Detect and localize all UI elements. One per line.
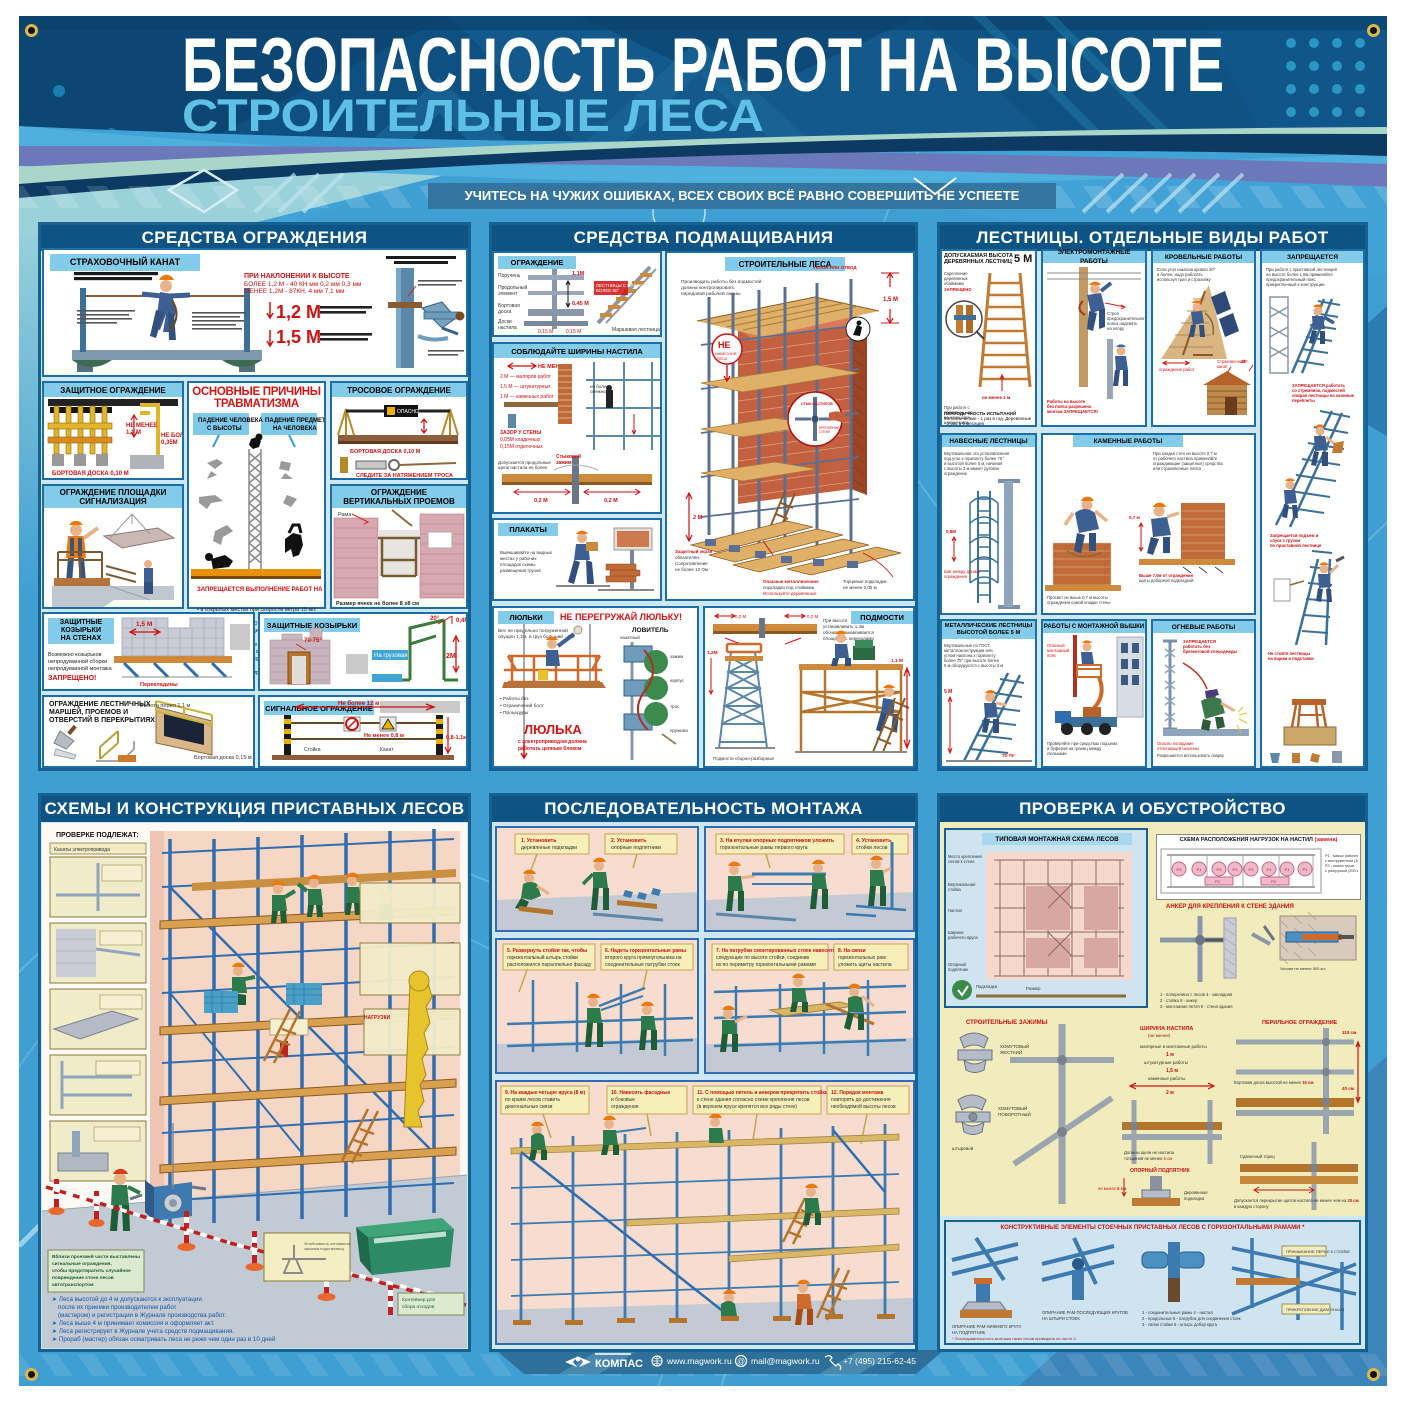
svg-text:Канат: Канат (380, 747, 394, 753)
svg-text:НАВЕСНОЙ: НАВЕСНОЙ (715, 352, 737, 356)
svg-text:ПРИ НАКЛОНЕНИИ К ВЫСОТЕ: ПРИ НАКЛОНЕНИИ К ВЫСОТЕ (244, 273, 350, 280)
svg-text:➤ Леса выше 4 м принимает ком: ➤ Леса выше 4 м принимает комиссия и офо… (52, 1320, 215, 1327)
svg-text:ПАДЕНИЕ ПРЕДМЕТОВ: ПАДЕНИЕ ПРЕДМЕТОВ (265, 418, 324, 424)
svg-text:СТЕНЕ: СТЕНЕ (819, 430, 831, 434)
svg-text:10. Навесить фасадные: 10. Навесить фасадные (611, 1089, 670, 1096)
svg-text:диагональные связи: диагональные связи (505, 1104, 553, 1110)
svg-text:ОПАСНО: ОПАСНО (397, 409, 419, 415)
svg-text:40 см: 40 см (1342, 1086, 1355, 1091)
svg-text:подкладка: подкладка (1184, 1196, 1205, 1201)
svg-text:деревянные подкладки: деревянные подкладки (521, 845, 577, 851)
svg-text:отлетающей окалины: отлетающей окалины (1157, 746, 1199, 751)
svg-text:чтобы предотвратить случайное: чтобы предотвратить случайное (52, 1267, 131, 1274)
svg-text:в каждую сторону: в каждую сторону (1234, 1204, 1270, 1209)
svg-text:Вывешивайте на видных: Вывешивайте на видных (500, 549, 553, 555)
svg-text:БОРТОВАЯ ДОСКА 0,10 М: БОРТОВАЯ ДОСКА 0,10 М (350, 449, 421, 455)
svg-text:0,2 М: 0,2 М (735, 614, 747, 619)
svg-text:2. Установить: 2. Установить (611, 838, 646, 844)
svg-text:1,5 М: 1,5 М (883, 297, 898, 303)
svg-text:их по периметру горизонтальным: их по периметру горизонтальными рамами (716, 962, 816, 968)
svg-text:переплеты: переплеты (1292, 398, 1315, 403)
svg-text:Контейнер для: Контейнер для (402, 1296, 436, 1303)
svg-text:устанавливать 1,3м: устанавливать 1,3м (823, 624, 864, 629)
svg-text:ЗАПРЕЩЕНО: ЗАПРЕЩЕНО (944, 287, 972, 292)
svg-text:Вес не предельно погруженной: Вес не предельно погруженной (498, 627, 568, 634)
svg-text:2 - продольные 5 - патрубок: 2 - продольные 5 - патрубок для соединен… (1142, 1316, 1241, 1321)
svg-text:Высота перил 1,1 м: Высота перил 1,1 м (140, 703, 190, 709)
svg-text:0,15М отделочных: 0,15М отделочных (500, 444, 543, 450)
svg-text:При высоте: При высоте (823, 618, 848, 623)
svg-text:ЖЕСТКИЙ: ЖЕСТКИЙ (1000, 1048, 1022, 1055)
svg-text:НАГРУЗКИ: НАГРУЗКИ (364, 1015, 391, 1021)
svg-text:БОЛЕЕ 60°: БОЛЕЕ 60° (596, 288, 620, 293)
svg-text:Бортовая доска высотой не мене: Бортовая доска высотой не менее 15 см (1234, 1080, 1313, 1085)
svg-text:Рама: Рама (338, 512, 352, 518)
svg-text:8. На связи: 8. На связи (838, 948, 866, 954)
svg-text:Р1: Р1 (1217, 867, 1223, 872)
svg-text:2 М: 2 М (693, 515, 703, 521)
svg-text:www.magwork.ru: www.magwork.ru (666, 1356, 732, 1366)
svg-text:необходимой высоты лесов: необходимой высоты лесов (831, 1103, 896, 1110)
svg-text:Продольный: Продольный (498, 284, 528, 291)
svg-text:Р1: Р1 (1177, 867, 1183, 872)
svg-text:ограждения: ограждения (944, 574, 967, 579)
svg-text:ПРИКРЕПЛЕНИЕ ДИАГОНАЛИ: ПРИКРЕПЛЕНИЕ ДИАГОНАЛИ (1286, 1307, 1344, 1312)
svg-text:смежный: смежный (590, 388, 610, 394)
svg-text:0,8М: 0,8М (946, 529, 956, 534)
svg-text:Разрешается использовать сварк: Разрешается использовать сварку (1157, 753, 1225, 758)
svg-text:НА ЧЕЛОВЕКА: НА ЧЕЛОВЕКА (273, 426, 317, 432)
svg-text:0,15 М: 0,15 М (566, 329, 581, 335)
svg-text:сбора отходов: сбора отходов (402, 1304, 435, 1310)
svg-text:• Работы без: • Работы без (500, 696, 529, 702)
svg-text:5 м оборудуются с высоты 3 м: 5 м оборудуются с высоты 3 м (944, 663, 1003, 668)
svg-text:1. Установить: 1. Установить (521, 838, 556, 844)
svg-text:0,2 М: 0,2 М (807, 614, 819, 619)
svg-text:ЛЕСА: ЛЕСА (717, 357, 728, 361)
svg-text:На грузовая: На грузовая (374, 653, 408, 659)
svg-text:2М: 2М (446, 653, 456, 660)
svg-text:0,15 М: 0,15 М (538, 329, 553, 335)
svg-text:4. Установить: 4. Установить (856, 838, 891, 844)
svg-text:КОМПАС: КОМПАС (595, 1358, 643, 1370)
svg-text:СТРОИТЕЛЬНЫЕ ЛЕСА: СТРОИТЕЛЬНЫЕ ЛЕСА (182, 90, 764, 141)
svg-text:на опору: на опору (1107, 326, 1125, 331)
svg-text:горизонтальный штырь стойки: горизонтальный штырь стойки (507, 954, 578, 961)
svg-text:корпус: корпус (670, 678, 685, 683)
svg-text:не менее 1 м: не менее 1 м (982, 395, 1011, 400)
svg-text:Стыковой: Стыковой (556, 453, 581, 460)
svg-text:7. На патрубки смонтированных: 7. На патрубки смонтированных стоек наве… (716, 947, 836, 954)
svg-text:работать цепным блоком: работать цепным блоком (518, 745, 582, 752)
svg-text:на ящики и подставки: на ящики и подставки (1268, 656, 1314, 661)
svg-text:повторять до достижения: повторять до достижения (831, 1097, 891, 1103)
svg-text:Бортовая доска 0,15 м: Бортовая доска 0,15 м (194, 755, 252, 761)
svg-text:стойки лесов: стойки лесов (856, 844, 888, 851)
svg-text:3 - связи стойки 6 - штырь д: 3 - связи стойки 6 - штырь добор круга (1142, 1322, 1218, 1327)
svg-text:1 - поперечина с лесов 4 -: 1 - поперечина с лесов 4 - закладная (1160, 992, 1232, 997)
svg-text:штыревой: штыревой (952, 1145, 974, 1151)
svg-text:горизонтальные рамы первого кр: горизонтальные рамы первого круга (720, 845, 808, 851)
svg-text:трос: трос (670, 704, 680, 709)
svg-text:ОПИРАНИЕ РАМ НИЖНЕГО КРУГА: ОПИРАНИЕ РАМ НИЖНЕГО КРУГА (952, 1324, 1021, 1329)
svg-text:Производить работы без подмост: Производить работы без подмостей (681, 278, 762, 285)
svg-text:пояс: пояс (1047, 653, 1056, 658)
svg-text:щиты доборной подкладкой: щиты доборной подкладкой (1139, 578, 1194, 583)
svg-text:Не более 12 м: Не более 12 м (338, 700, 380, 707)
svg-text:• Процедуры: • Процедуры (500, 710, 529, 716)
svg-text:11. С помощью петель и анкеров: 11. С помощью петель и анкеров прикрепит… (697, 1089, 828, 1096)
svg-text:ЗАЗОР У СТЕНЫ: ЗАЗОР У СТЕНЫ (500, 430, 541, 436)
svg-text:Деревянная: Деревянная (1184, 1190, 1208, 1195)
svg-text:1,2 М: 1,2 М (276, 302, 321, 322)
svg-text:С ВЫСОТЫ: С ВЫСОТЫ (207, 426, 242, 432)
svg-text:(мастером) и регистрации в Жур: (мастером) и регистрации в Журнале произ… (58, 1312, 226, 1319)
svg-text:автотранспортом: автотранспортом (52, 1283, 94, 1288)
svg-text:СТРОИТЕЛЬНЫЕ ЗАЖИМЫ: СТРОИТЕЛЬНЫЕ ЗАЖИМЫ (966, 1020, 1048, 1026)
svg-text:пружина: пружина (670, 728, 688, 733)
svg-text:0,05М кладочных: 0,05М кладочных (500, 437, 541, 443)
svg-text:1 м: 1 м (1166, 1052, 1174, 1058)
svg-text:не менее 5 см: не менее 5 см (1098, 1186, 1126, 1191)
svg-text:НА ШТЫРИ СТОЕК: НА ШТЫРИ СТОЕК (1042, 1316, 1080, 1321)
svg-text:1,5 М: 1,5 М (136, 621, 152, 628)
svg-text:подпятник: подпятник (948, 967, 968, 972)
svg-text:* Последовательность монтажа т: * Последовательность монтажа таких лесов… (952, 1336, 1077, 1341)
svg-text:70-75°: 70-75° (1002, 753, 1016, 758)
svg-text:каменные работы: каменные работы (1148, 1076, 1185, 1081)
svg-text:Опасные металлические: Опасные металлические (763, 579, 819, 584)
svg-text:и боковые: и боковые (611, 1097, 635, 1103)
svg-text:5 М: 5 М (944, 689, 952, 695)
svg-text:брезентовой спецодежды: брезентовой спецодежды (1183, 649, 1238, 654)
svg-text:непродуманной сборки: непродуманной сборки (48, 658, 107, 665)
svg-text:Р1: Р1 (1285, 867, 1291, 872)
svg-text:Используйте деревянные: Используйте деревянные (763, 590, 817, 596)
svg-text:Канаты электропривода: Канаты электропривода (54, 847, 110, 853)
svg-text:(не менее): (не менее) (1148, 1033, 1171, 1038)
svg-text:ЛОВИТЕЛЬ: ЛОВИТЕЛЬ (632, 627, 669, 634)
svg-text:@: @ (737, 1357, 745, 1366)
svg-text:повреждение стоек лесов: повреждение стоек лесов (52, 1276, 114, 1281)
svg-text:0,7 м: 0,7 м (1129, 515, 1141, 520)
svg-text:с электроприводом должна: с электроприводом должна (518, 739, 587, 745)
svg-text:9. На каждые четыре яруса (8 м: 9. На каждые четыре яруса (8 м) (505, 1090, 585, 1096)
svg-text:ШИРИНА НАСТИЛА: ШИРИНА НАСТИЛА (1140, 1026, 1193, 1032)
svg-text:+7 (495) 215-62-45: +7 (495) 215-62-45 (843, 1356, 916, 1366)
svg-text:люльками: люльками (1047, 751, 1067, 756)
svg-text:НЕ: НЕ (718, 340, 731, 350)
svg-text:НЕ МЕНЕЕ: НЕ МЕНЕЕ (126, 423, 157, 429)
svg-text:ЗАПРЕЩАЕТСЯ ВЫПОЛНЕНИЕ РАБОТ Н: ЗАПРЕЩАЕТСЯ ВЫПОЛНЕНИЕ РАБОТ НА ВЫСОТЕ: (197, 587, 324, 593)
svg-text:уложить щиты настила: уложить щиты настила (838, 962, 892, 968)
svg-text:12. Порядок монтажа: 12. Порядок монтажа (831, 1090, 884, 1096)
svg-text:2 М — маляров работ: 2 М — маляров работ (500, 374, 552, 380)
svg-text:ПРОВЕРКЕ ПОДЛЕЖАТ:: ПРОВЕРКЕ ПОДЛЕЖАТ: (56, 832, 139, 839)
svg-text:2 - стойка: 2 - стойка 5 - анкер (1160, 998, 1198, 1003)
svg-text:Усилие не менее 500 кгс: Усилие не менее 500 кгс (1280, 966, 1326, 971)
svg-text:• Ограничений болт: • Ограничений болт (500, 702, 545, 709)
svg-text:ЗАПРЕЩЕНО!: ЗАПРЕЩЕНО! (48, 675, 96, 682)
svg-text:следующие по высоте стойки, со: следующие по высоте стойки, соединив (716, 954, 809, 961)
svg-text:0,45 М: 0,45 М (572, 301, 589, 307)
svg-text:ПРИМЫКАНИЕ ПЕРИЛ К СТОЙКЕ: ПРИМЫКАНИЕ ПЕРИЛ К СТОЙКЕ (1286, 1249, 1350, 1254)
svg-text:Размер ячеек не более 8 х8 см: Размер ячеек не более 8 х8 см (336, 600, 419, 607)
svg-text:БОРТОВАЯ ДОСКА 0,10 М: БОРТОВАЯ ДОСКА 0,10 М (52, 471, 129, 477)
svg-text:обязателен.: обязателен. (675, 555, 700, 560)
svg-text:Допускается перекрытие щитов н: Допускается перекрытие щитов настила не … (1234, 1198, 1359, 1203)
svg-text:монтаж ЗАПРЕЩАЕТСЯ!: монтаж ЗАПРЕЩАЕТСЯ! (1047, 409, 1098, 414)
svg-text:щели настила не более: щели настила не более (498, 465, 548, 470)
svg-text:ХОМУТОВЫЙ: ХОМУТОВЫЙ (998, 1104, 1027, 1111)
svg-text:70-75°: 70-75° (304, 638, 322, 644)
svg-text:ЛЮЛЬКА: ЛЮЛЬКА (524, 722, 582, 737)
svg-text:толщиной не менее 5 см: толщиной не менее 5 см (1124, 1156, 1172, 1161)
svg-text:1 - соединительные рамы 4 -: 1 - соединительные рамы 4 - настил (1142, 1310, 1213, 1315)
svg-text:штукатурные работы: штукатурные работы (1144, 1060, 1188, 1065)
svg-text:ОПИРАНИЕ РАМ ПОСЛЕДУЮЩИХ КРУГО: ОПИРАНИЕ РАМ ПОСЛЕДУЮЩИХ КРУГОВ (1042, 1310, 1128, 1315)
svg-text:➤ Леса высотой до 4 м допуска: ➤ Леса высотой до 4 м допускаются к эксп… (52, 1296, 202, 1303)
svg-text:НЕ БОЛЕЕ: НЕ БОЛЕЕ (161, 433, 182, 439)
svg-text:второго круга прямоугольника н: второго круга прямоугольника на (605, 955, 682, 961)
svg-text:СТЫК НАСТИЛОВ: СТЫК НАСТИЛОВ (801, 402, 833, 406)
svg-text:Сдвоенный торец: Сдвоенный торец (1240, 1154, 1275, 1159)
svg-text:малярные и монтажные работы: малярные и монтажные работы (1140, 1044, 1207, 1049)
svg-text:5. Развернуть стойки так, чтоб: 5. Развернуть стойки так, чтобы (507, 947, 587, 954)
svg-text:Защитный экран: Защитный экран (675, 548, 713, 554)
svg-text:Сопротивление: Сопротивление (675, 561, 708, 566)
svg-text:Поручень: Поручень (498, 273, 521, 279)
svg-text:1,5 м: 1,5 м (1166, 1068, 1178, 1074)
svg-text:засыпка подстилающ.: засыпка подстилающ. (304, 1246, 345, 1251)
svg-text:Торцевые подкладки: Торцевые подкладки (843, 579, 887, 584)
svg-text:или страховочные пояса: или страховочные пояса (1153, 466, 1202, 471)
svg-text:УКЛОН ИЛИ ОТВОД: УКЛОН ИЛИ ОТВОД (813, 265, 857, 270)
svg-text:Настил: Настил (948, 908, 963, 913)
svg-text:зажим: зажим (670, 654, 683, 659)
svg-text:рабочего яруса: рабочего яруса (948, 935, 978, 940)
svg-text:Перекладины: Перекладины (140, 682, 178, 688)
svg-text:ОПОРНЫЙ ПОДПЯТНИК: ОПОРНЫЙ ПОДПЯТНИК (1130, 1166, 1191, 1174)
svg-text:0,2 М: 0,2 М (604, 498, 618, 504)
svg-text:размещения грузов: размещения грузов (500, 568, 541, 573)
svg-text:Р2: Р2 (1271, 879, 1277, 884)
svg-text:mail@magwork.ru: mail@magwork.ru (751, 1356, 820, 1366)
svg-text:ХОМУТОВЫЙ: ХОМУТОВЫЙ (1000, 1042, 1029, 1049)
svg-text:0,4М: 0,4М (456, 618, 466, 624)
svg-text:Размер: Размер (1026, 986, 1041, 991)
svg-text:непродуманной монтажа: непродуманной монтажа (48, 665, 113, 672)
svg-text:ПЕРИЛЬНОЕ ОГРАЖДЕНИЕ: ПЕРИЛЬНОЕ ОГРАЖДЕНИЕ (1262, 1020, 1338, 1026)
svg-text:МЕНЕЕ 1,2М - 87КН, 4 мм 7,1 м: МЕНЕЕ 1,2М - 87КН, 4 мм 7,1 мм (244, 288, 345, 295)
svg-text:Р1: Р1 (1233, 867, 1239, 872)
svg-text:3. На втулки опорных подпятник: 3. На втулки опорных подпятников уложить (720, 838, 834, 844)
svg-text:по краям лесов ставить: по краям лесов ставить (505, 1097, 560, 1103)
svg-text:ограждение работ: ограждение работ (1159, 367, 1195, 372)
svg-text:6. Надеть горизонтальные рамы: 6. Надеть горизонтальные рамы (605, 948, 686, 954)
svg-text:Не менее 0,8 м: Не менее 0,8 м (364, 733, 404, 739)
svg-text:используя трап и страховку: используя трап и страховку (1157, 277, 1212, 282)
svg-text:не менее 0,05 м: не менее 0,05 м (843, 585, 877, 590)
svg-text:2 м: 2 м (1166, 1090, 1174, 1096)
svg-text:Возможно козырьков: Возможно козырьков (48, 652, 102, 658)
svg-text:Стойка: Стойка (304, 746, 321, 753)
svg-text:Р1: Р1 (1303, 867, 1309, 872)
svg-text:1,2М: 1,2М (707, 650, 718, 656)
svg-text:Вблизи проезжей части выставле: Вблизи проезжей части выставлены (52, 1253, 140, 1260)
svg-text:опущен 1,2м, а груз больший -: опущен 1,2м, а груз больший - 1 м (498, 633, 575, 640)
svg-text:Должны щели не настила: Должны щели не настила (1124, 1150, 1175, 1155)
svg-text:расположился параллельно фасад: расположился параллельно фасаду (507, 962, 592, 968)
svg-text:не более 10 Ом: не более 10 Ом (675, 567, 708, 572)
svg-text:доска: доска (498, 309, 511, 315)
svg-text:(в верхнем ярусе крепятся все: (в верхнем ярусе крепятся все ряды стоек… (697, 1104, 797, 1110)
svg-text:местах у рабочих: местах у рабочих (500, 556, 537, 561)
svg-text:лесов к стене: лесов к стене (948, 859, 975, 864)
svg-text:Р2 - масса груза: Р2 - масса груза (1325, 864, 1355, 868)
svg-text:1,1 М: 1,1 М (126, 430, 141, 436)
svg-text:ограждения: ограждения (611, 1104, 639, 1110)
svg-text:подкладки под стойками: подкладки под стойками (763, 584, 815, 590)
svg-text:Р1: Р1 (1197, 867, 1203, 872)
svg-text:канатный: канатный (620, 634, 640, 640)
svg-text:1,5 М — штукатурных: 1,5 М — штукатурных (500, 384, 551, 390)
svg-text:➤ Леса регистрирует в Журнале: ➤ Леса регистрирует в Журнале учета сред… (52, 1328, 234, 1335)
svg-text:должна контролировать: должна контролировать (681, 286, 735, 291)
svg-text:Маршевая лестница: Маршевая лестница (612, 327, 660, 333)
svg-text:горизонтальных рам: горизонтальных рам (838, 955, 886, 961)
svg-text:Р1: Р1 (1249, 867, 1255, 872)
svg-text:0,35М: 0,35М (161, 440, 178, 446)
svg-text:канат: канат (1217, 364, 1228, 369)
svg-text:опорные подпятники: опорные подпятники (611, 845, 661, 851)
svg-text:Подмости сборно-разборные: Подмости сборно-разборные (713, 756, 775, 761)
svg-text:сигнальные ограждения,: сигнальные ограждения, (52, 1262, 112, 1267)
svg-text:Р1: Р1 (1267, 867, 1273, 872)
svg-text:СЛЕДИТЕ ЗА НАТЯЖЕНИЕМ ТРОСА: СЛЕДИТЕ ЗА НАТЯЖЕНИЕМ ТРОСА (356, 473, 453, 478)
svg-text:по приставной лестнице: по приставной лестнице (1270, 543, 1322, 548)
svg-text:1,5 М: 1,5 М (276, 327, 321, 347)
svg-text:0,8-1,1м: 0,8-1,1м (446, 735, 466, 741)
svg-text:с разгрузкой (200 кг): с разгрузкой (200 кг) (1325, 869, 1358, 873)
svg-text:ограждения самой кладки стены: ограждения самой кладки стены (1047, 600, 1110, 605)
svg-text:1,1М: 1,1М (572, 271, 585, 277)
svg-text:прикрепленный к конструкции: прикрепленный к конструкции (1266, 282, 1325, 287)
svg-text:с инструментом (100 кг): с инструментом (100 кг) (1325, 859, 1358, 863)
svg-text:ограждение: ограждение (944, 471, 968, 476)
svg-text:стойка: стойка (948, 887, 962, 892)
svg-text:1 М — каменных работ: 1 М — каменных работ (500, 394, 555, 400)
svg-text:БОЛЕЕ 1,2 М - 40 КН мм 0,2 мм: БОЛЕЕ 1,2 М - 40 КН мм 0,2 мм 0,3 мм (244, 281, 362, 288)
svg-text:➤ Прораб (мастер) обязан осма: ➤ Прораб (мастер) обязан осматривать лес… (52, 1336, 276, 1343)
svg-text:20°: 20° (430, 616, 440, 622)
svg-text:площадок схемы: площадок схемы (500, 562, 535, 567)
svg-text:ПОВОРОТНЫЙ: ПОВОРОТНЫЙ (998, 1110, 1031, 1117)
svg-text:соединительные патрубки стоек: соединительные патрубки стоек (605, 962, 681, 968)
svg-text:настила: настила (498, 325, 517, 331)
svg-text:после их приемки производителе: после их приемки производителем работ (58, 1304, 177, 1311)
svg-text:обоймами: обоймами (944, 281, 964, 286)
svg-text:Р1 - масса рабочего: Р1 - масса рабочего (1325, 854, 1358, 858)
svg-text:20°: 20° (1241, 359, 1248, 364)
svg-text:ПАДЕНИЕ ЧЕЛОВЕКА: ПАДЕНИЕ ЧЕЛОВЕКА (198, 418, 264, 424)
svg-text:Подкладка: Подкладка (976, 984, 998, 989)
svg-text:обочка устанавливается: обочка устанавливается (823, 630, 874, 635)
svg-text:Р2: Р2 (1215, 879, 1221, 884)
svg-text:элемент: элемент (498, 291, 518, 297)
svg-text:0,2 М: 0,2 М (534, 498, 548, 504)
svg-text:зажим: зажим (556, 460, 572, 466)
svg-text:НА ПОДПЯТНИК: НА ПОДПЯТНИК (952, 1330, 986, 1335)
svg-text:110 см: 110 см (1342, 1030, 1357, 1035)
svg-text:к стене здания согласно схеме: к стене здания согласно схеме крепления … (697, 1097, 810, 1103)
svg-text:1,1 М: 1,1 М (891, 658, 903, 664)
svg-text:3 - монтажная петля 6 - с: 3 - монтажная петля 6 - стена здания (1160, 1004, 1232, 1009)
